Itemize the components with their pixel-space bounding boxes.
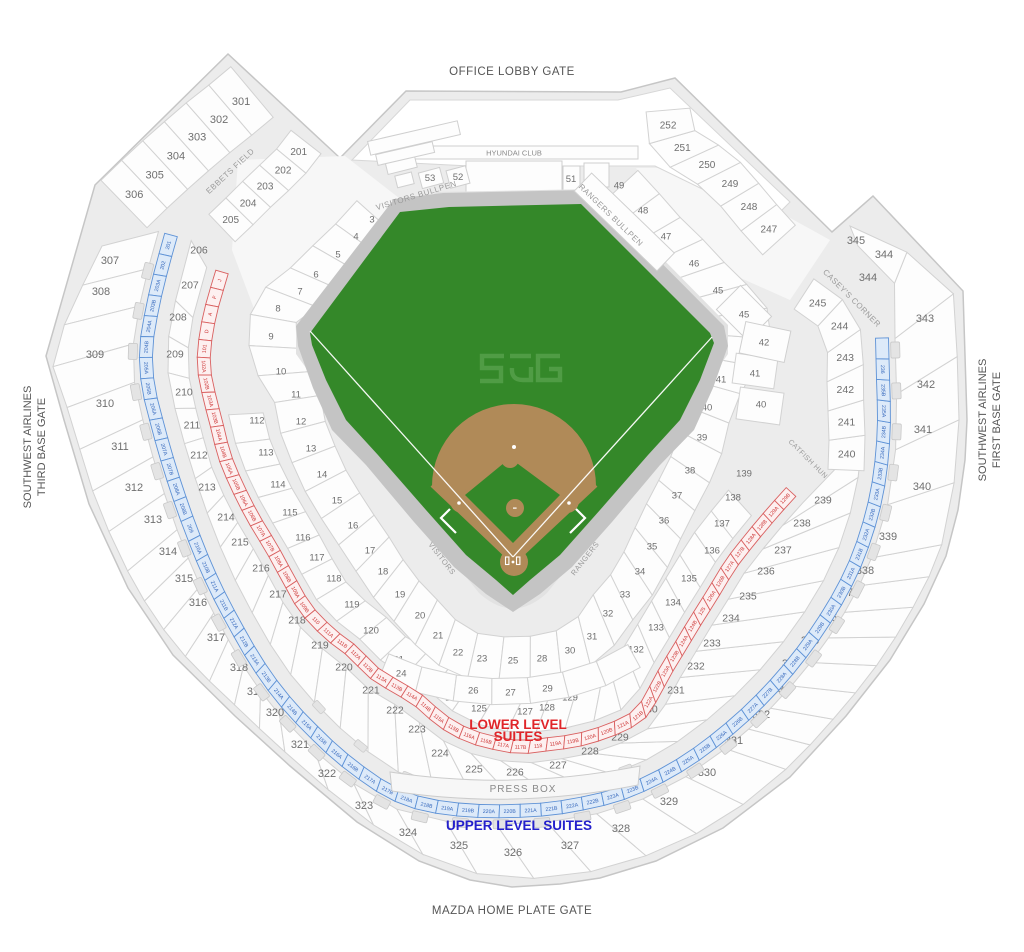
svg-text:32: 32: [603, 608, 614, 619]
svg-text:36: 36: [659, 515, 670, 526]
svg-text:115: 115: [282, 507, 297, 518]
svg-text:28: 28: [537, 653, 548, 664]
svg-text:16: 16: [348, 520, 359, 531]
svg-text:312: 312: [125, 482, 143, 494]
svg-text:134: 134: [665, 597, 681, 608]
svg-text:222: 222: [386, 705, 404, 717]
svg-text:303: 303: [188, 132, 206, 144]
svg-text:51: 51: [566, 174, 577, 185]
svg-text:315: 315: [175, 573, 193, 585]
svg-text:204: 204: [240, 199, 257, 210]
svg-text:120: 120: [363, 625, 379, 636]
svg-text:101: 101: [202, 344, 209, 353]
svg-text:27: 27: [505, 688, 516, 699]
svg-text:14: 14: [317, 469, 328, 480]
svg-text:210: 210: [175, 387, 193, 399]
svg-text:119: 119: [344, 599, 359, 610]
svg-text:311: 311: [111, 441, 129, 453]
svg-text:37: 37: [672, 490, 683, 501]
svg-text:307: 307: [101, 255, 119, 267]
svg-text:127: 127: [517, 706, 533, 717]
svg-text:238: 238: [793, 518, 811, 530]
svg-text:345: 345: [847, 235, 865, 247]
svg-text:234B: 234B: [881, 425, 888, 438]
svg-text:53: 53: [425, 173, 436, 184]
svg-text:224: 224: [431, 748, 449, 760]
svg-text:MAZDA HOME PLATE GATE: MAZDA HOME PLATE GATE: [432, 905, 592, 917]
svg-text:23: 23: [477, 653, 488, 664]
svg-text:45: 45: [739, 309, 750, 320]
svg-text:314: 314: [159, 546, 177, 558]
svg-text:SUITES: SUITES: [494, 729, 543, 744]
svg-text:209: 209: [166, 349, 184, 361]
svg-text:243: 243: [836, 352, 854, 364]
svg-text:41: 41: [750, 368, 761, 379]
svg-text:344: 344: [875, 249, 893, 261]
svg-text:237: 237: [774, 545, 792, 557]
svg-text:113: 113: [258, 447, 273, 458]
svg-text:342: 342: [917, 379, 935, 391]
svg-text:232: 232: [687, 661, 705, 673]
svg-text:12: 12: [296, 416, 307, 427]
svg-text:HYUNDAI CLUB: HYUNDAI CLUB: [486, 149, 542, 158]
svg-text:328: 328: [612, 823, 630, 835]
svg-text:228: 228: [581, 746, 599, 758]
svg-text:306: 306: [125, 189, 143, 201]
svg-text:244: 244: [831, 320, 849, 332]
svg-text:25: 25: [508, 655, 519, 666]
svg-text:6: 6: [313, 269, 318, 280]
svg-text:326: 326: [504, 847, 522, 859]
svg-text:206: 206: [190, 245, 208, 257]
svg-text:236: 236: [757, 566, 775, 578]
svg-text:112: 112: [249, 415, 264, 426]
svg-text:308: 308: [92, 286, 110, 298]
svg-text:117B: 117B: [515, 745, 527, 751]
svg-text:208: 208: [169, 312, 187, 324]
svg-text:29: 29: [542, 684, 553, 695]
svg-text:213: 213: [198, 482, 216, 494]
svg-text:245: 245: [809, 297, 827, 309]
svg-text:248: 248: [741, 202, 758, 213]
svg-text:322: 322: [318, 768, 336, 780]
svg-text:221: 221: [362, 685, 380, 697]
svg-text:49: 49: [614, 180, 625, 191]
svg-text:35: 35: [647, 541, 658, 552]
svg-text:117: 117: [309, 552, 324, 563]
svg-text:207: 207: [181, 280, 199, 292]
svg-text:234: 234: [722, 613, 740, 625]
svg-text:251: 251: [674, 143, 691, 154]
svg-text:305: 305: [146, 169, 164, 181]
svg-text:137: 137: [714, 518, 730, 529]
svg-text:221A: 221A: [524, 808, 537, 815]
svg-text:205: 205: [222, 215, 239, 226]
svg-text:201: 201: [290, 147, 307, 158]
svg-text:30: 30: [565, 645, 576, 656]
svg-text:4: 4: [353, 231, 358, 242]
svg-text:31: 31: [587, 631, 598, 642]
svg-text:3: 3: [369, 214, 374, 225]
svg-text:18: 18: [378, 566, 389, 577]
svg-text:323: 323: [355, 800, 373, 812]
svg-text:226: 226: [506, 767, 524, 779]
svg-text:40: 40: [756, 399, 767, 410]
svg-text:223: 223: [408, 724, 426, 736]
svg-text:240: 240: [838, 449, 856, 461]
svg-text:313: 313: [144, 514, 162, 526]
svg-text:OFFICE LOBBY GATE: OFFICE LOBBY GATE: [449, 66, 575, 78]
svg-text:39: 39: [697, 432, 708, 443]
svg-text:45: 45: [713, 285, 724, 296]
svg-text:48: 48: [638, 205, 649, 216]
svg-text:139: 139: [736, 468, 752, 479]
svg-text:24: 24: [396, 668, 407, 679]
svg-text:204B: 204B: [144, 340, 151, 353]
svg-text:102A: 102A: [200, 360, 207, 373]
svg-text:329: 329: [660, 796, 678, 808]
svg-text:214: 214: [217, 512, 235, 524]
svg-text:234A: 234A: [880, 446, 887, 459]
svg-text:324: 324: [399, 827, 417, 839]
svg-text:5: 5: [335, 249, 340, 260]
svg-text:343: 343: [916, 313, 934, 325]
svg-text:116: 116: [295, 532, 310, 543]
svg-text:227: 227: [549, 760, 567, 772]
svg-text:17: 17: [365, 545, 376, 556]
svg-text:FIRST BASE GATE: FIRST BASE GATE: [991, 372, 1003, 468]
svg-text:11: 11: [291, 389, 301, 400]
svg-text:135: 135: [681, 573, 697, 584]
svg-text:301: 301: [232, 96, 250, 108]
svg-text:212: 212: [190, 450, 208, 462]
svg-text:216: 216: [252, 563, 270, 575]
svg-text:21: 21: [433, 630, 444, 641]
svg-text:215: 215: [231, 537, 249, 549]
svg-text:341: 341: [914, 424, 932, 436]
svg-text:22: 22: [453, 647, 464, 658]
svg-text:239: 239: [814, 495, 832, 507]
svg-text:252: 252: [660, 121, 677, 132]
svg-text:34: 34: [635, 566, 646, 577]
svg-text:26: 26: [468, 685, 479, 696]
svg-text:304: 304: [167, 151, 185, 163]
svg-text:19: 19: [395, 589, 406, 600]
svg-text:20: 20: [415, 610, 426, 621]
svg-text:217: 217: [269, 589, 287, 601]
svg-text:316: 316: [189, 597, 207, 609]
svg-text:219B: 219B: [462, 808, 475, 815]
svg-text:114: 114: [270, 479, 285, 490]
svg-text:125: 125: [471, 703, 487, 714]
svg-text:220: 220: [335, 662, 353, 674]
svg-text:PRESS BOX: PRESS BOX: [490, 784, 557, 795]
svg-text:118: 118: [326, 573, 341, 584]
svg-text:320: 320: [266, 707, 284, 719]
svg-text:242: 242: [837, 384, 855, 396]
svg-text:241: 241: [838, 416, 856, 428]
svg-text:250: 250: [699, 160, 716, 171]
svg-text:38: 38: [685, 465, 696, 476]
svg-text:321: 321: [291, 739, 309, 751]
svg-text:249: 249: [722, 179, 739, 190]
svg-text:THIRD BASE GATE: THIRD BASE GATE: [36, 398, 48, 496]
svg-text:133: 133: [648, 622, 664, 633]
svg-text:138: 138: [725, 492, 741, 503]
svg-text:202: 202: [275, 165, 292, 176]
svg-text:302: 302: [210, 114, 228, 126]
svg-text:SOUTHWEST AIRLINES: SOUTHWEST AIRLINES: [977, 359, 989, 482]
svg-text:219: 219: [311, 640, 329, 652]
svg-text:7: 7: [297, 286, 302, 297]
svg-text:203: 203: [257, 181, 274, 192]
svg-text:46: 46: [689, 258, 700, 269]
svg-text:344: 344: [859, 272, 877, 284]
svg-text:42: 42: [759, 337, 770, 348]
svg-text:118: 118: [534, 743, 543, 750]
svg-text:317: 317: [207, 632, 225, 644]
svg-text:33: 33: [620, 589, 631, 600]
svg-text:128: 128: [539, 702, 555, 713]
svg-text:220B: 220B: [504, 809, 517, 815]
svg-text:325: 325: [450, 840, 468, 852]
svg-text:13: 13: [306, 443, 317, 454]
svg-text:UPPER LEVEL SUITES: UPPER LEVEL SUITES: [446, 818, 592, 833]
svg-text:310: 310: [96, 398, 114, 410]
svg-text:231: 231: [667, 685, 685, 697]
svg-text:136: 136: [704, 545, 720, 556]
svg-text:225: 225: [465, 764, 483, 776]
svg-text:15: 15: [332, 495, 343, 506]
svg-text:10: 10: [276, 366, 287, 377]
svg-text:9: 9: [268, 331, 273, 342]
svg-text:235A: 235A: [880, 405, 886, 418]
svg-text:339: 339: [879, 531, 897, 543]
svg-text:205A: 205A: [142, 362, 149, 375]
svg-text:8: 8: [275, 303, 280, 314]
svg-text:236: 236: [879, 365, 885, 374]
svg-text:327: 327: [561, 840, 579, 852]
svg-text:220A: 220A: [483, 809, 496, 815]
svg-text:235: 235: [739, 591, 757, 603]
svg-text:340: 340: [913, 481, 931, 493]
svg-text:233: 233: [703, 638, 721, 650]
svg-text:211: 211: [184, 420, 201, 432]
svg-text:309: 309: [86, 349, 104, 361]
svg-text:247: 247: [761, 224, 778, 235]
svg-text:235B: 235B: [879, 384, 885, 397]
svg-text:SOUTHWEST AIRLINES: SOUTHWEST AIRLINES: [22, 386, 34, 509]
